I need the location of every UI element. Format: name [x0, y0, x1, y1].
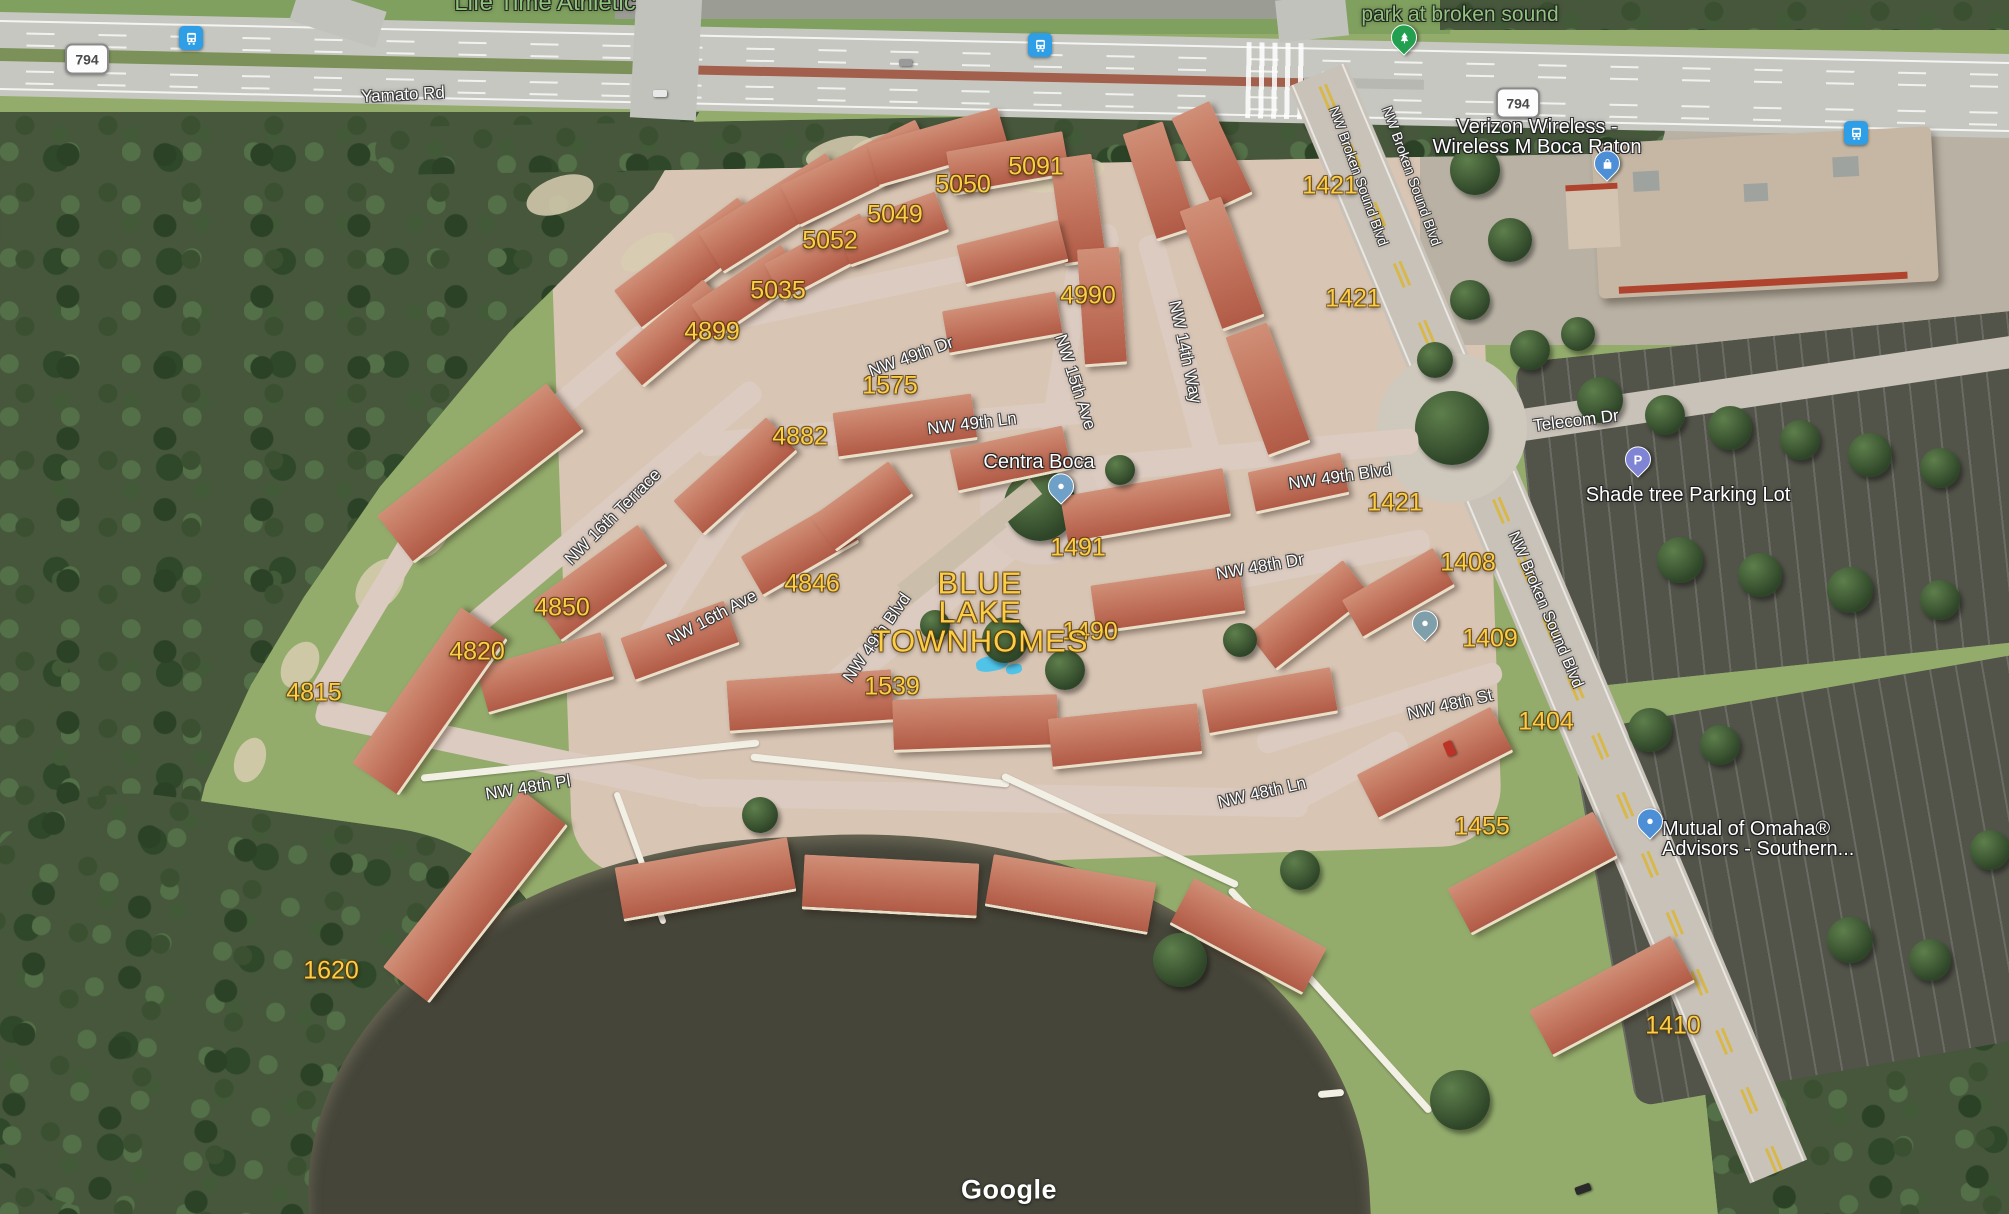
tree [1970, 830, 2009, 870]
tree [1920, 580, 1960, 620]
bag-pin-icon [1589, 145, 1626, 182]
tree [1430, 1070, 1490, 1130]
pin-glyph [1638, 809, 1662, 833]
pin-glyph [1049, 474, 1073, 498]
car [899, 59, 912, 66]
address-label[interactable]: 4990 [1060, 282, 1116, 311]
address-label[interactable]: 4882 [772, 423, 828, 452]
poi-marker-mutual-of-omaha[interactable] [1631, 806, 1667, 846]
poi-marker-verizon-wireless[interactable] [1588, 148, 1624, 188]
address-label[interactable]: 1575 [862, 372, 918, 401]
poi-label-shade-tree-parking-lot[interactable]: Shade tree Parking Lot [1586, 485, 1791, 505]
tree-pin-icon [1386, 19, 1423, 56]
millers-building [1591, 126, 1939, 299]
pin-glyph [1595, 151, 1619, 175]
tree [1827, 567, 1873, 613]
road-stub-broken-sound-north [1275, 0, 1349, 43]
tree [1738, 553, 1782, 597]
tree [1561, 317, 1595, 351]
tree [1780, 420, 1820, 460]
address-label[interactable]: 1409 [1462, 625, 1518, 654]
tree [1280, 850, 1320, 890]
poi-label-life-time-athletic[interactable]: Life Time Athletic [454, 0, 635, 13]
address-label[interactable]: 1620 [303, 957, 359, 986]
townhome-building [801, 854, 979, 918]
satellite-map-canvas[interactable]: Yamato RdTelecom DrNW 49th DrNW 49th LnN… [0, 0, 2009, 1214]
google-watermark[interactable]: Google [961, 1175, 1057, 1206]
bus-stop-icon[interactable] [1028, 33, 1052, 57]
tower [1565, 182, 1620, 249]
dot-pin-icon [1632, 803, 1669, 840]
address-label[interactable]: 5035 [750, 277, 806, 306]
pin-glyph [1392, 25, 1416, 49]
address-label[interactable]: 4850 [534, 594, 590, 623]
address-label[interactable]: 5091 [1008, 153, 1064, 182]
poi-label-line: Centra Boca [983, 452, 1094, 472]
pin-glyph [1413, 611, 1437, 635]
road-stub-lifetime-entrance [630, 0, 702, 121]
community-name-line: BLUE [872, 569, 1089, 598]
address-label[interactable]: 1421 [1367, 489, 1423, 518]
tree [1450, 280, 1490, 320]
pin-glyph: P [1626, 447, 1650, 471]
tree [1920, 448, 1960, 488]
tree [1105, 455, 1135, 485]
address-label[interactable]: 5052 [802, 227, 858, 256]
car [1574, 1183, 1592, 1196]
address-label[interactable]: 1421 [1325, 285, 1381, 314]
address-label[interactable]: 1455 [1454, 813, 1510, 842]
roundabout-island [1415, 391, 1489, 465]
car [653, 90, 667, 97]
address-label[interactable]: 5049 [867, 201, 923, 230]
bus-stop-icon[interactable] [1844, 121, 1868, 145]
tree [1909, 939, 1951, 981]
address-label[interactable]: 1421 [1302, 172, 1358, 201]
zone-lot-topstrip [615, 0, 1295, 19]
poi-label-line: Shade tree Parking Lot [1586, 485, 1791, 505]
tree [1223, 623, 1257, 657]
address-label[interactable]: 1491 [1050, 534, 1106, 563]
address-label[interactable]: 1410 [1645, 1012, 1701, 1041]
address-label[interactable]: 1404 [1518, 708, 1574, 737]
poi-label-line: Verizon Wireless - [1433, 117, 1642, 137]
address-label[interactable]: 5050 [935, 171, 991, 200]
median-brick [654, 65, 1304, 88]
parking-pin-icon: P [1620, 441, 1657, 478]
tree [1645, 395, 1685, 435]
tree [1827, 917, 1873, 963]
poi-marker-shade-tree-parking-lot[interactable]: P [1619, 444, 1655, 484]
route-shield-794: 794 [65, 44, 109, 75]
poi-marker-romero-investment-management[interactable] [1406, 608, 1442, 648]
poi-label-line: Advisors - Southern... [1662, 839, 1854, 859]
bus-stop-icon[interactable] [179, 26, 203, 50]
poi-label-centra-boca[interactable]: Centra Boca [983, 452, 1094, 472]
tree [1417, 342, 1453, 378]
tree [742, 797, 778, 833]
townhome-building [892, 694, 1059, 753]
tree [1153, 933, 1207, 987]
address-label[interactable]: 4815 [286, 679, 342, 708]
tree [1708, 406, 1752, 450]
rooftop-unit [1832, 156, 1859, 177]
address-label[interactable]: 1539 [864, 673, 920, 702]
tree [1488, 218, 1532, 262]
address-label[interactable]: 4820 [449, 638, 505, 667]
route-shield-794: 794 [1496, 88, 1540, 119]
poi-marker-centra-boca[interactable] [1042, 471, 1078, 511]
tree [1510, 330, 1550, 370]
dot-pin-icon [1407, 605, 1444, 642]
dot-pin-icon [1043, 468, 1080, 505]
tree [1657, 537, 1703, 583]
sand-patch [228, 733, 272, 786]
poi-label-mutual-of-omaha[interactable]: Mutual of Omaha®Advisors - Southern... [1662, 819, 1854, 859]
address-label[interactable]: 4899 [684, 318, 740, 347]
tree [1628, 708, 1672, 752]
poi-label-line: Life Time Athletic [454, 0, 635, 13]
tree [1700, 725, 1740, 765]
tree [1848, 433, 1892, 477]
address-label[interactable]: 1408 [1440, 549, 1496, 578]
poi-label-line: Mutual of Omaha® [1662, 819, 1854, 839]
community-name-line: LAKE [872, 598, 1089, 627]
rooftop-unit [1743, 182, 1768, 201]
poi-marker-park-at-broken-sound[interactable] [1385, 22, 1421, 62]
community-name-label[interactable]: BLUELAKETOWNHOMES [872, 569, 1089, 656]
community-name-line: TOWNHOMES [872, 627, 1089, 656]
rooftop-unit [1633, 170, 1660, 191]
address-label[interactable]: 4846 [784, 570, 840, 599]
